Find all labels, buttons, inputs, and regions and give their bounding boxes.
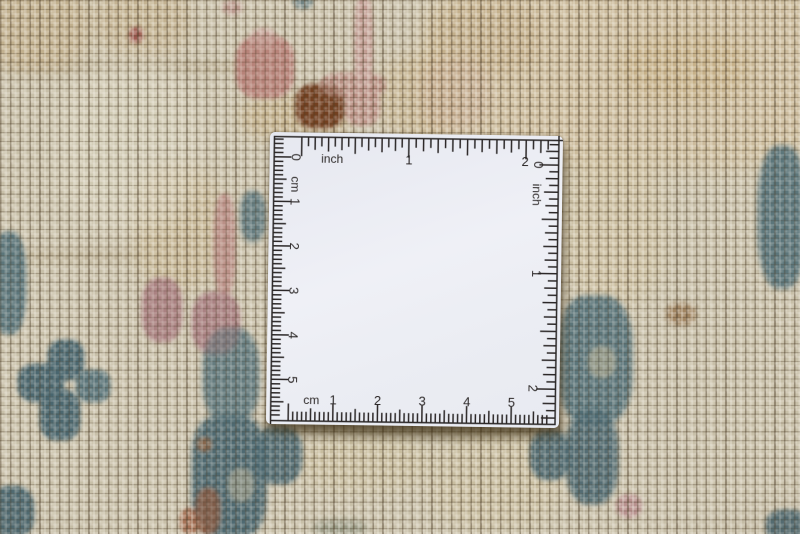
svg-text:4: 4 [285,332,300,339]
svg-text:2: 2 [373,393,380,408]
svg-text:2: 2 [521,154,528,169]
svg-text:1: 1 [528,270,543,277]
svg-text:2: 2 [286,243,301,250]
svg-text:cm: cm [303,393,319,407]
svg-text:3: 3 [418,394,425,409]
svg-text:inch: inch [321,152,343,166]
svg-text:1: 1 [329,393,336,408]
svg-text:1: 1 [405,153,412,168]
svg-text:inch: inch [529,184,543,206]
svg-text:3: 3 [286,287,301,294]
svg-text:5: 5 [285,376,300,383]
svg-text:4: 4 [463,394,470,409]
svg-text:0: 0 [288,154,303,161]
svg-text:cm: cm [288,176,302,192]
svg-text:1: 1 [287,198,302,205]
svg-text:0: 0 [531,161,546,168]
svg-text:5: 5 [507,395,514,410]
svg-text:2: 2 [525,385,540,392]
